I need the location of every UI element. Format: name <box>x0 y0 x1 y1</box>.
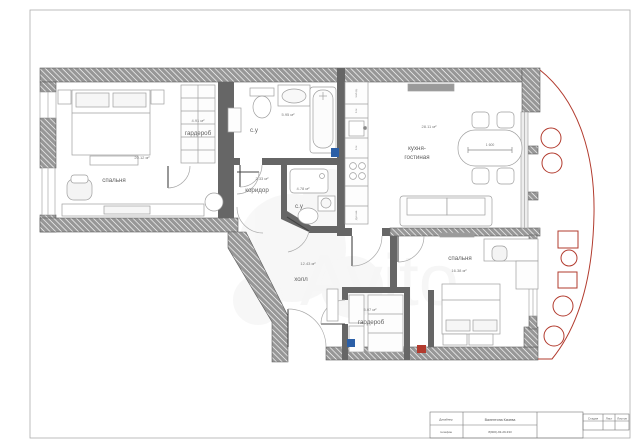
dining-chair <box>497 168 514 184</box>
designer-name: Валентина Качева <box>485 418 516 422</box>
room-label-wardrobe-left: гардероб <box>185 130 212 137</box>
fridge-label: холод. <box>354 88 358 97</box>
tv-bedroom-right <box>440 233 474 237</box>
marker-blue <box>331 148 339 157</box>
floor-plan-sheet: Avito <box>0 0 640 445</box>
tv-kitchen <box>408 84 454 91</box>
room-area-bedroom-right: 16.38 м² <box>451 268 467 273</box>
phone-label: телефон <box>440 430 452 434</box>
kitchen-counter <box>345 82 368 224</box>
designer-label: Дизайнер <box>439 418 453 422</box>
floor-plan-drawing: Avito <box>0 0 640 445</box>
room-label-wardrobe-hall: гардероб <box>358 319 385 326</box>
sheets-label: Листов <box>617 417 627 421</box>
room-area-bedroom-left: 20.12 м² <box>134 155 150 160</box>
room-area-wardrobe-left: 4.91 м² <box>192 118 206 123</box>
washing-machine <box>228 108 241 132</box>
dining-chair <box>497 112 514 128</box>
room-area-wardrobe-hall: 5.07 м² <box>364 307 378 312</box>
wardrobe-left-shelves <box>181 85 215 163</box>
toilet-small-bath <box>298 208 318 224</box>
oven-label: дух.шк. <box>354 210 358 220</box>
hall-console <box>327 289 338 321</box>
dining-table <box>458 130 522 166</box>
kitchen-sink <box>349 121 364 136</box>
stage-label: Стадия <box>588 417 599 421</box>
room-label-bedroom-right: спальня <box>448 255 472 262</box>
room-label-kitchen-line1: кухня- <box>408 145 426 152</box>
room-label-bathroom-small: с.у <box>295 203 304 210</box>
bed-left <box>58 90 164 165</box>
room-label-bathroom-top: с.у <box>250 127 259 134</box>
armchair-left-bedroom <box>67 175 92 200</box>
sheet-label: Лист <box>606 417 613 421</box>
dining-chair <box>472 112 489 128</box>
marker-red <box>417 345 426 353</box>
room-label-corridor: коридор <box>245 187 269 194</box>
dining-chair <box>472 168 489 184</box>
sink-top-bath <box>282 89 306 103</box>
window-bedroom-left-2 <box>42 168 55 215</box>
room-area-corridor: 2.33 м² <box>256 176 270 181</box>
room-area-hall: 12.43 м² <box>300 261 316 266</box>
dishwasher-label: п.м <box>354 109 358 114</box>
room-label-hall: холл <box>294 276 308 283</box>
toilet-top-bath <box>253 96 271 118</box>
room-area-bathroom-small: 4.78 м² <box>297 186 311 191</box>
phone-number: 8(900)-93-29-333 <box>488 430 512 434</box>
dining-table-dimension: 1 600 <box>486 143 495 147</box>
desk-chair <box>492 246 507 261</box>
toilet-tank <box>250 88 274 96</box>
room-area-kitchen: 28.11 м² <box>422 124 438 129</box>
unit-label: п.м <box>354 146 358 151</box>
bed-bench <box>90 156 138 165</box>
room-area-bathroom-top: 5.95 м² <box>282 112 296 117</box>
pouf-left-bedroom <box>205 193 223 211</box>
room-label-bedroom-left: спальня <box>102 177 126 184</box>
marker-blue <box>347 339 355 347</box>
room-label-kitchen-line2: гостиная <box>404 154 429 161</box>
sofa <box>400 196 492 226</box>
